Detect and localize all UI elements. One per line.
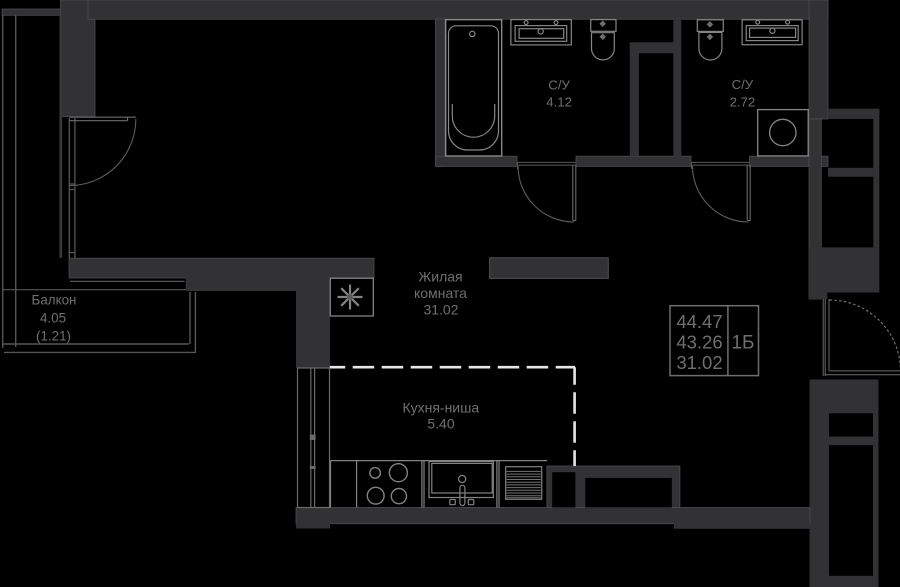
svg-text:2.72: 2.72 [730,94,756,109]
svg-text:(1.21): (1.21) [36,329,71,344]
svg-text:комната: комната [414,285,467,301]
svg-text:31.02: 31.02 [676,352,722,373]
svg-text:Жилая: Жилая [418,269,462,285]
svg-text:43.26: 43.26 [676,331,722,352]
svg-text:31.02: 31.02 [423,302,458,318]
svg-text:5.40: 5.40 [427,416,454,432]
svg-text:С/У: С/У [732,77,754,92]
svg-text:4.05: 4.05 [40,310,66,325]
svg-text:1Б: 1Б [731,332,754,353]
svg-text:Балкон: Балкон [32,292,77,307]
svg-text:Кухня-ниша: Кухня-ниша [402,400,479,416]
svg-text:4.12: 4.12 [546,95,572,110]
svg-text:С/У: С/У [548,78,570,93]
svg-text:44.47: 44.47 [676,311,722,332]
